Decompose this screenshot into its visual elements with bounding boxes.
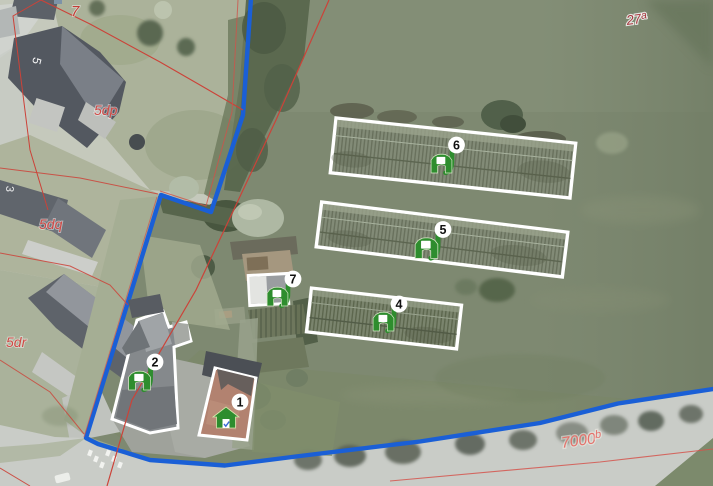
- svg-text:1: 1: [237, 395, 244, 409]
- svg-text:5dr: 5dr: [6, 334, 28, 350]
- svg-text:5dp: 5dp: [94, 102, 118, 118]
- svg-text:4: 4: [396, 297, 403, 311]
- svg-text:2: 2: [152, 355, 159, 369]
- svg-text:7: 7: [290, 272, 297, 286]
- svg-text:3: 3: [3, 185, 15, 192]
- svg-text:5: 5: [440, 223, 447, 237]
- svg-text:6: 6: [453, 138, 460, 152]
- svg-text:7: 7: [71, 3, 80, 20]
- svg-text:5dq: 5dq: [39, 216, 63, 232]
